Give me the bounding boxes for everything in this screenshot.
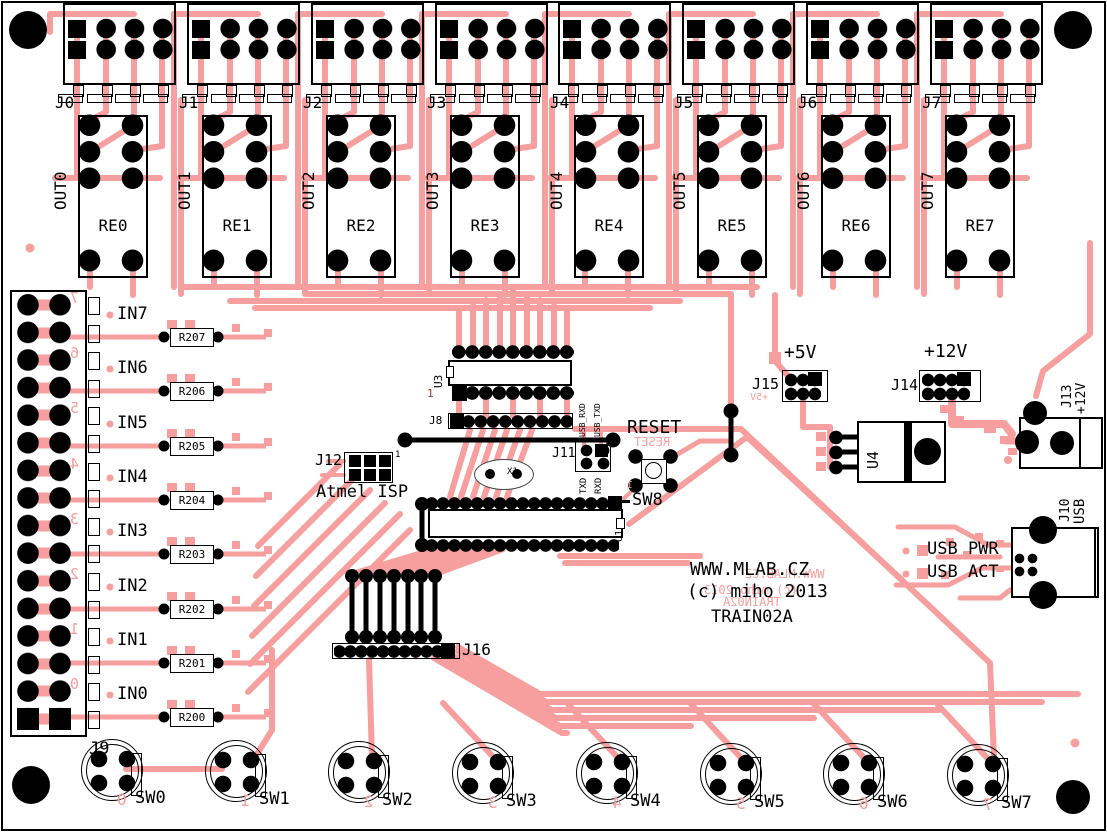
net-label: OUT5	[672, 158, 688, 210]
pad-square	[811, 20, 829, 38]
header-label: J13	[1061, 380, 1074, 408]
pad-grid	[68, 112, 154, 192]
net-label: OUT1	[177, 158, 193, 210]
signal-label: USB_RXD	[579, 403, 587, 437]
pad-grid	[935, 247, 1021, 274]
terminal-mark	[350, 85, 361, 97]
net-label: IN5	[117, 415, 148, 432]
header-label: J3	[427, 95, 446, 111]
resistor-r201: R201	[170, 654, 214, 673]
pad-grid	[1013, 552, 1039, 578]
switch-sw7	[947, 744, 1009, 806]
num-mirrored: 6	[859, 796, 869, 812]
terminal-mark	[321, 85, 332, 97]
terminal-mark	[749, 85, 760, 97]
pad-grid	[340, 18, 425, 60]
mounting-hole	[12, 766, 50, 804]
terminal-mark	[158, 85, 169, 97]
mounting-hole	[9, 11, 47, 49]
pad-grid	[456, 750, 512, 798]
resistor-label: R204	[179, 495, 206, 506]
pad-square	[687, 41, 705, 59]
net-label: OUT4	[549, 158, 565, 210]
pad-row	[426, 497, 608, 510]
pad-square	[379, 469, 391, 481]
net-label: OUT0	[53, 158, 69, 210]
switch-sw5	[700, 743, 762, 805]
num-mirrored: 2	[364, 794, 374, 810]
pad-square	[364, 469, 376, 481]
pad-square	[349, 455, 361, 467]
pad-square	[563, 20, 581, 38]
pin-number-mirrored: 2	[70, 567, 79, 582]
terminal-mark	[226, 85, 237, 97]
header-label: J0	[55, 95, 74, 111]
net-label: +12V	[1075, 376, 1088, 414]
pin-tab	[88, 656, 100, 674]
pad	[1023, 401, 1047, 425]
terminal-mark	[625, 85, 636, 97]
num-mirrored: 0	[117, 792, 127, 808]
net-label: IN1	[117, 632, 148, 649]
ic-u1	[428, 509, 623, 538]
resistor-label: R200	[179, 712, 206, 723]
pad-grid	[209, 748, 265, 796]
pin-tab	[88, 518, 100, 536]
pin-tab	[88, 683, 100, 701]
pad-square	[379, 455, 391, 467]
pin-number-mirrored: 0	[70, 677, 79, 692]
switch-label: SW4	[630, 793, 661, 810]
terminal-mark	[130, 85, 141, 97]
pin-tab	[88, 297, 100, 315]
pin-tab	[88, 352, 100, 370]
net-label: IN7	[117, 306, 148, 323]
pad-square	[440, 41, 458, 59]
terminal-mark	[445, 85, 456, 97]
pad-square	[957, 372, 971, 386]
net-label: OUT7	[920, 158, 936, 210]
pcb-layout-train02a: J0 J1 J2 J3 J4 J5 J6 J7 RE0 OUT0 RE1 OUT…	[0, 0, 1107, 832]
header-label: J6	[798, 95, 817, 111]
pad-row	[426, 539, 620, 552]
pad-grid	[811, 247, 897, 274]
pad-square	[687, 20, 705, 38]
pin-tab	[88, 463, 100, 481]
terminal-mark	[940, 85, 951, 97]
pin1-label: 1	[395, 451, 400, 460]
terminal-mark	[254, 85, 265, 97]
relay-label: RE7	[945, 218, 1015, 234]
pad-square	[364, 455, 376, 467]
pad-grid	[564, 247, 650, 274]
pad	[914, 438, 941, 465]
resistor-r204: R204	[170, 491, 214, 510]
relay-label: RE0	[78, 218, 148, 234]
terminal-mark	[73, 85, 84, 97]
pad-square	[595, 444, 608, 457]
pad-grid	[687, 112, 773, 192]
pad	[1015, 430, 1039, 454]
switch-label: SW0	[135, 790, 166, 807]
title-website: WWW.MLAB.CZ	[690, 561, 809, 579]
pad-row	[452, 386, 574, 400]
header-label: J10	[1059, 494, 1072, 522]
resistor-r203: R203	[170, 545, 214, 564]
signal-label: USB_TXD	[594, 403, 602, 437]
header-label: J15	[752, 377, 779, 392]
num-mirrored: 3	[488, 795, 498, 811]
pad-row	[334, 645, 443, 658]
pad	[1029, 581, 1057, 609]
terminal-mark	[816, 85, 827, 97]
pin-number-mirrored: 5	[70, 401, 79, 416]
num-mirrored: 4	[612, 795, 622, 811]
pad-grid	[68, 247, 154, 274]
header-label: J16	[462, 642, 491, 658]
resistor-r206: R206	[170, 382, 214, 401]
pad-grid	[935, 112, 1021, 192]
pad-grid	[332, 749, 388, 797]
pad	[485, 469, 495, 479]
header-label: J11	[552, 447, 575, 460]
signal-label: TXD	[580, 470, 589, 494]
pad-grid	[951, 752, 1007, 800]
terminal-mark	[597, 85, 608, 97]
header-label: J2	[303, 95, 322, 111]
pin-tab	[88, 380, 100, 398]
pad-square	[935, 20, 953, 38]
num-mirrored: 1	[241, 793, 251, 809]
pad-grid	[316, 112, 402, 192]
switch-label: SW7	[1001, 795, 1032, 812]
switch-sw1	[205, 740, 267, 802]
pad-grid	[192, 247, 278, 274]
pad	[1050, 431, 1074, 455]
pad-grid	[835, 18, 920, 60]
pad-grid	[827, 751, 883, 799]
pad-row	[450, 415, 573, 428]
net-label: IN3	[117, 523, 148, 540]
switch-sw6	[823, 743, 885, 805]
pin-tab	[88, 601, 100, 619]
pad-grid	[92, 18, 177, 60]
net-label: RESET	[627, 419, 681, 437]
header-label: J14	[891, 378, 918, 393]
pad-square	[316, 41, 334, 59]
net-label: USB	[1073, 490, 1087, 524]
led-label: USB ACT	[927, 564, 999, 581]
pad-square	[450, 414, 464, 428]
resistor-r200: R200	[170, 708, 214, 727]
terminal-mark	[197, 85, 208, 97]
pin-number-mirrored: 4	[70, 457, 79, 472]
pad-grid	[440, 247, 526, 274]
isp-caption: Atmel ISP	[316, 484, 408, 501]
resistor-label: R201	[179, 658, 206, 669]
pad-grid	[192, 112, 278, 192]
pin-tab	[88, 573, 100, 591]
switch-sw4	[576, 742, 638, 804]
regulator-tab-bar	[904, 421, 912, 483]
pad	[1029, 516, 1057, 544]
pin-tab	[88, 490, 100, 508]
terminal-mark	[1025, 85, 1036, 97]
pad-grid	[464, 18, 549, 60]
pin-number-mirrored: 6	[70, 346, 79, 361]
resistor-label: R206	[179, 386, 206, 397]
terminal-mark	[901, 85, 912, 97]
mounting-hole	[1054, 11, 1092, 49]
pad-grid	[959, 18, 1044, 60]
pad-grid	[12, 291, 76, 733]
mounting-hole	[1056, 780, 1090, 814]
terminal-mark	[692, 85, 703, 97]
switch-label: SW2	[382, 792, 413, 809]
terminal-mark	[282, 85, 293, 97]
switch-sw2	[328, 741, 390, 803]
header-label: J1	[179, 95, 198, 111]
resistor-r207: R207	[170, 328, 214, 347]
ic-label: U4	[866, 437, 881, 469]
terminal-mark	[406, 85, 417, 97]
net-label: +12V	[924, 343, 967, 361]
pad-square	[811, 41, 829, 59]
header-label: J12	[315, 453, 342, 468]
pad-grid	[564, 112, 650, 192]
pad-square	[808, 372, 822, 386]
pad-square	[17, 708, 39, 730]
terminal-mark	[530, 85, 541, 97]
title-copyright: (c) miho 2013	[687, 583, 828, 601]
resistor-label: R202	[179, 604, 206, 615]
terminal-mark	[102, 85, 113, 97]
pin-number-mirrored: 1	[70, 622, 79, 637]
terminal-mark	[653, 85, 664, 97]
pad-square	[608, 496, 622, 510]
tick-mark	[622, 500, 630, 503]
pad-grid	[587, 18, 672, 60]
pad-grid	[711, 18, 796, 60]
pad-square	[440, 20, 458, 38]
net-label: OUT6	[796, 158, 812, 210]
pin-tab	[88, 628, 100, 646]
terminal-mark	[502, 85, 513, 97]
terminal-mark	[997, 85, 1008, 97]
relay-label: RE3	[450, 218, 520, 234]
pad-grid	[216, 18, 301, 60]
net-label: IN0	[117, 686, 148, 703]
relay-label: RE2	[326, 218, 396, 234]
resistor-label: R205	[179, 441, 206, 452]
switch-sw3	[452, 742, 514, 804]
switch-label: SW3	[506, 793, 537, 810]
switch-label: SW6	[877, 794, 908, 811]
net-label: IN6	[117, 360, 148, 377]
pad-square	[563, 41, 581, 59]
relay-label: RE5	[697, 218, 767, 234]
num-mirrored: 5	[736, 796, 746, 812]
pin1-label: 1	[427, 388, 434, 399]
pad-row	[452, 345, 574, 359]
header-label: J8	[429, 415, 442, 426]
pin-tab	[88, 407, 100, 425]
terminal-mark	[721, 85, 732, 97]
terminal-mark	[777, 85, 788, 97]
net-label: OUT3	[425, 158, 441, 210]
terminal-mark	[378, 85, 389, 97]
pad-grid	[704, 751, 760, 799]
title-board-name: TRAIN02A	[711, 609, 793, 626]
ic-u3	[448, 360, 572, 386]
crystal-x1	[474, 459, 534, 490]
resistor-label: R203	[179, 549, 206, 560]
pad-grid	[440, 112, 526, 192]
pad-square	[452, 386, 467, 401]
switch-sw0	[81, 739, 143, 801]
net-label: OUT2	[301, 158, 317, 210]
header-label: J4	[550, 95, 569, 111]
switch-label: SW1	[259, 791, 290, 808]
relay-label: RE1	[202, 218, 272, 234]
pad-square	[192, 20, 210, 38]
num-mirrored: 7	[983, 797, 993, 813]
terminal-mark	[568, 85, 579, 97]
pad-square	[49, 708, 71, 730]
switch-label: SW5	[754, 794, 785, 811]
pin-number-mirrored: 7	[70, 291, 79, 306]
pin-tab	[88, 545, 100, 563]
pad-square	[441, 644, 455, 658]
pin-number-mirrored: 3	[70, 512, 79, 527]
pad-square	[349, 469, 361, 481]
terminal-mark	[873, 85, 884, 97]
relay-label: RE6	[821, 218, 891, 234]
net-label-mirrored: +5V	[750, 393, 768, 403]
pad-square	[316, 20, 334, 38]
pad-square	[192, 41, 210, 59]
pad-square	[935, 41, 953, 59]
pad-column	[829, 430, 843, 475]
header-label: J5	[674, 95, 693, 111]
pad-grid	[580, 750, 636, 798]
net-label: +5V	[784, 344, 817, 362]
resistor-r205: R205	[170, 437, 214, 456]
relay-label: RE4	[574, 218, 644, 234]
terminal-mark	[969, 85, 980, 97]
dc-jack-tab	[1079, 417, 1103, 469]
ic-notch	[446, 366, 454, 378]
pin-tab	[88, 325, 100, 343]
led-label: USB PWR	[927, 541, 999, 558]
signal-label: RXD	[595, 470, 604, 494]
resistor-r202: R202	[170, 600, 214, 619]
pin-tab	[88, 435, 100, 453]
pad-grid	[811, 112, 897, 192]
header-label: J7	[922, 95, 941, 111]
resistor-label: R207	[179, 332, 206, 343]
pad-grid	[687, 247, 773, 274]
pad-square	[68, 41, 86, 59]
terminal-mark	[845, 85, 856, 97]
ic-label: U3	[433, 364, 444, 388]
pad-square	[68, 20, 86, 38]
net-label: IN2	[117, 578, 148, 595]
crystal-label: X1	[507, 468, 518, 477]
button-label: SW8	[632, 492, 663, 509]
reset-button-plunger	[645, 462, 662, 479]
usb-connector-edge	[1094, 527, 1096, 598]
pad-grid	[316, 247, 402, 274]
net-label: IN4	[117, 469, 148, 486]
pin-tab	[88, 711, 100, 729]
pad-grid	[85, 747, 141, 795]
terminal-mark	[474, 85, 485, 97]
ic-label: U1	[615, 516, 625, 542]
